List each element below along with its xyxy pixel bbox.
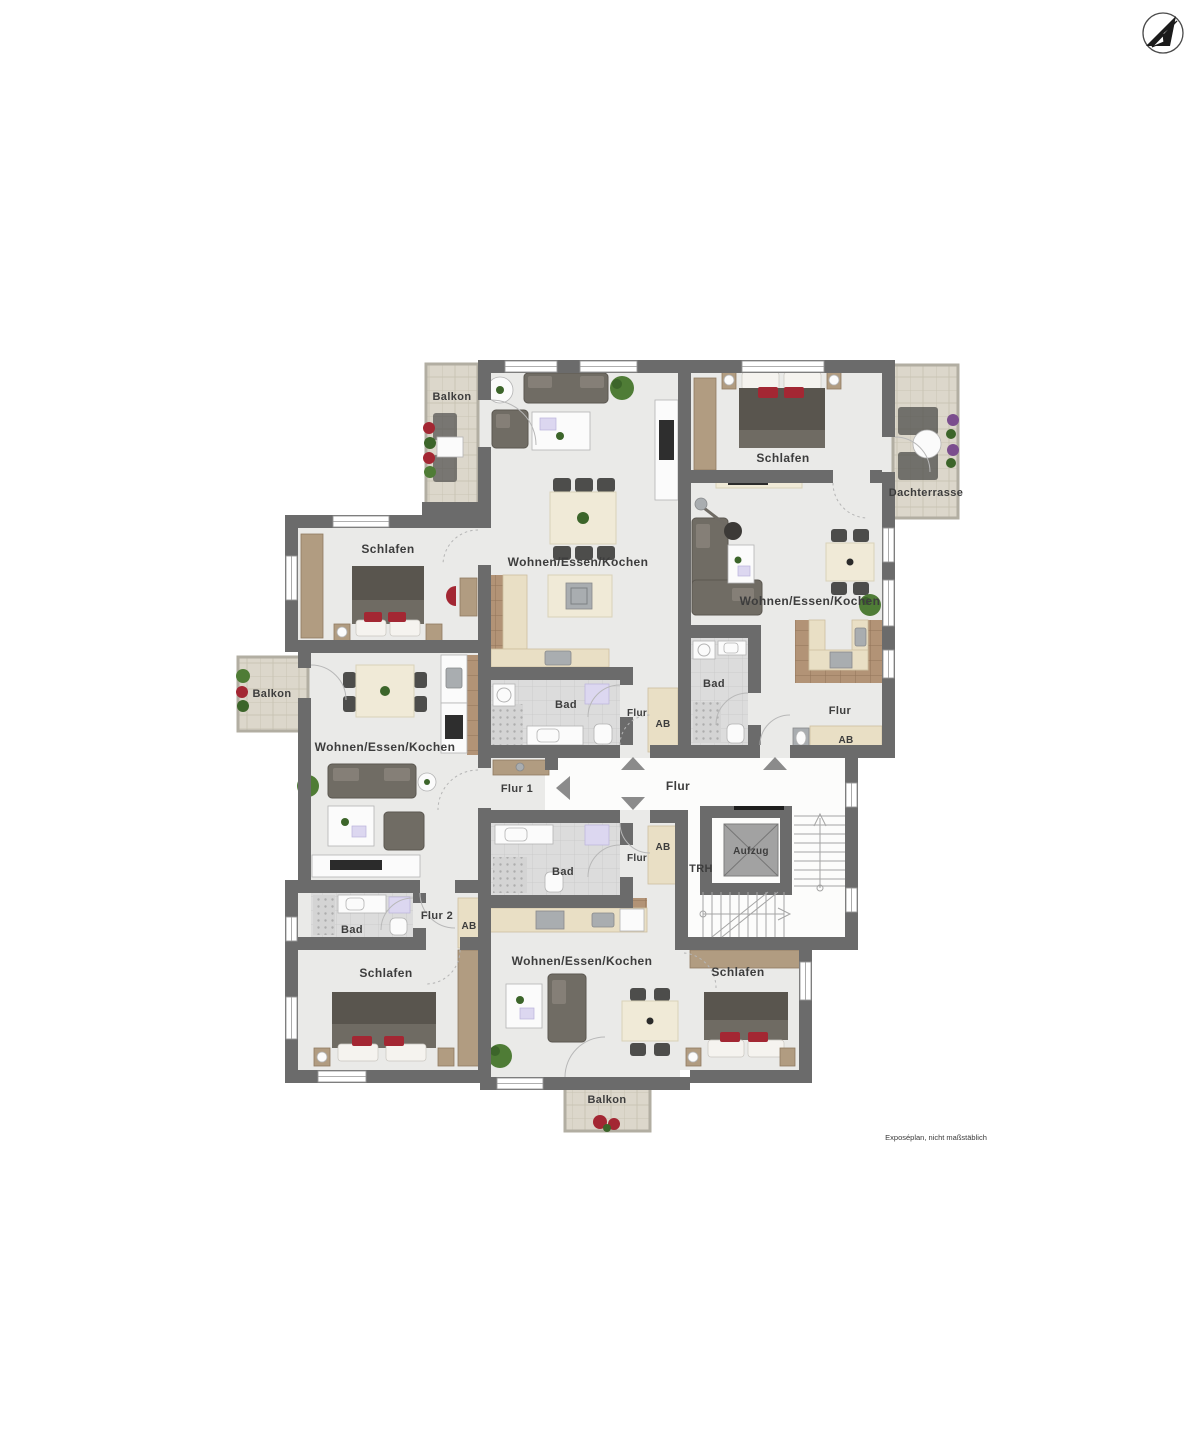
label-dachterrasse: Dachterrasse xyxy=(889,487,964,499)
label-aufzug: Aufzug xyxy=(733,846,769,857)
storage-ab-bottom-center xyxy=(648,826,678,884)
label-bad-top-center: Bad xyxy=(555,699,577,711)
label-wek-top: Wohnen/Essen/Kochen xyxy=(508,555,649,569)
label-flur-top-center: Flur xyxy=(627,708,647,719)
label-bad-right: Bad xyxy=(703,678,725,690)
label-flur-bottom-center: Flur xyxy=(627,853,647,864)
label-wek-right: Wohnen/Essen/Kochen xyxy=(740,594,881,608)
label-wek-bottom: Wohnen/Essen/Kochen xyxy=(512,954,653,968)
label-ab-right: AB xyxy=(838,735,853,746)
label-ab-left: AB xyxy=(461,921,476,932)
label-flur2: Flur 2 xyxy=(421,910,453,922)
label-flur-right: Flur xyxy=(829,705,852,717)
label-ab-bottom-center: AB xyxy=(655,842,670,853)
label-ab-top-center: AB xyxy=(655,719,670,730)
label-flur-main: Flur xyxy=(666,779,690,793)
corridor-floor xyxy=(545,758,845,810)
label-schlafen-sw: Schlafen xyxy=(359,966,412,980)
label-schlafen-ne: Schlafen xyxy=(756,451,809,465)
floor-plan-page: Balkon Wohnen/Essen/Kochen Schlafen Dach… xyxy=(0,0,1200,1434)
label-wek-left: Wohnen/Essen/Kochen xyxy=(315,740,456,754)
balcony-nw-furniture xyxy=(423,413,463,482)
label-schlafen-se: Schlafen xyxy=(711,965,764,979)
label-schlafen-w: Schlafen xyxy=(361,542,414,556)
label-balkon-nw: Balkon xyxy=(432,391,471,403)
disclaimer-text: Exposéplan, nicht maßstäblich xyxy=(885,1133,987,1142)
label-bad-sw: Bad xyxy=(341,924,363,936)
label-flur1: Flur 1 xyxy=(501,783,533,795)
elevator-door xyxy=(734,806,784,810)
label-balkon-w: Balkon xyxy=(252,688,291,700)
label-balkon-s: Balkon xyxy=(587,1094,626,1106)
label-bad-bottom-center: Bad xyxy=(552,866,574,878)
label-trh: TRH xyxy=(689,863,713,875)
floor-plan-drawing: Balkon Wohnen/Essen/Kochen Schlafen Dach… xyxy=(0,0,1200,1434)
north-compass-icon xyxy=(1143,13,1183,53)
